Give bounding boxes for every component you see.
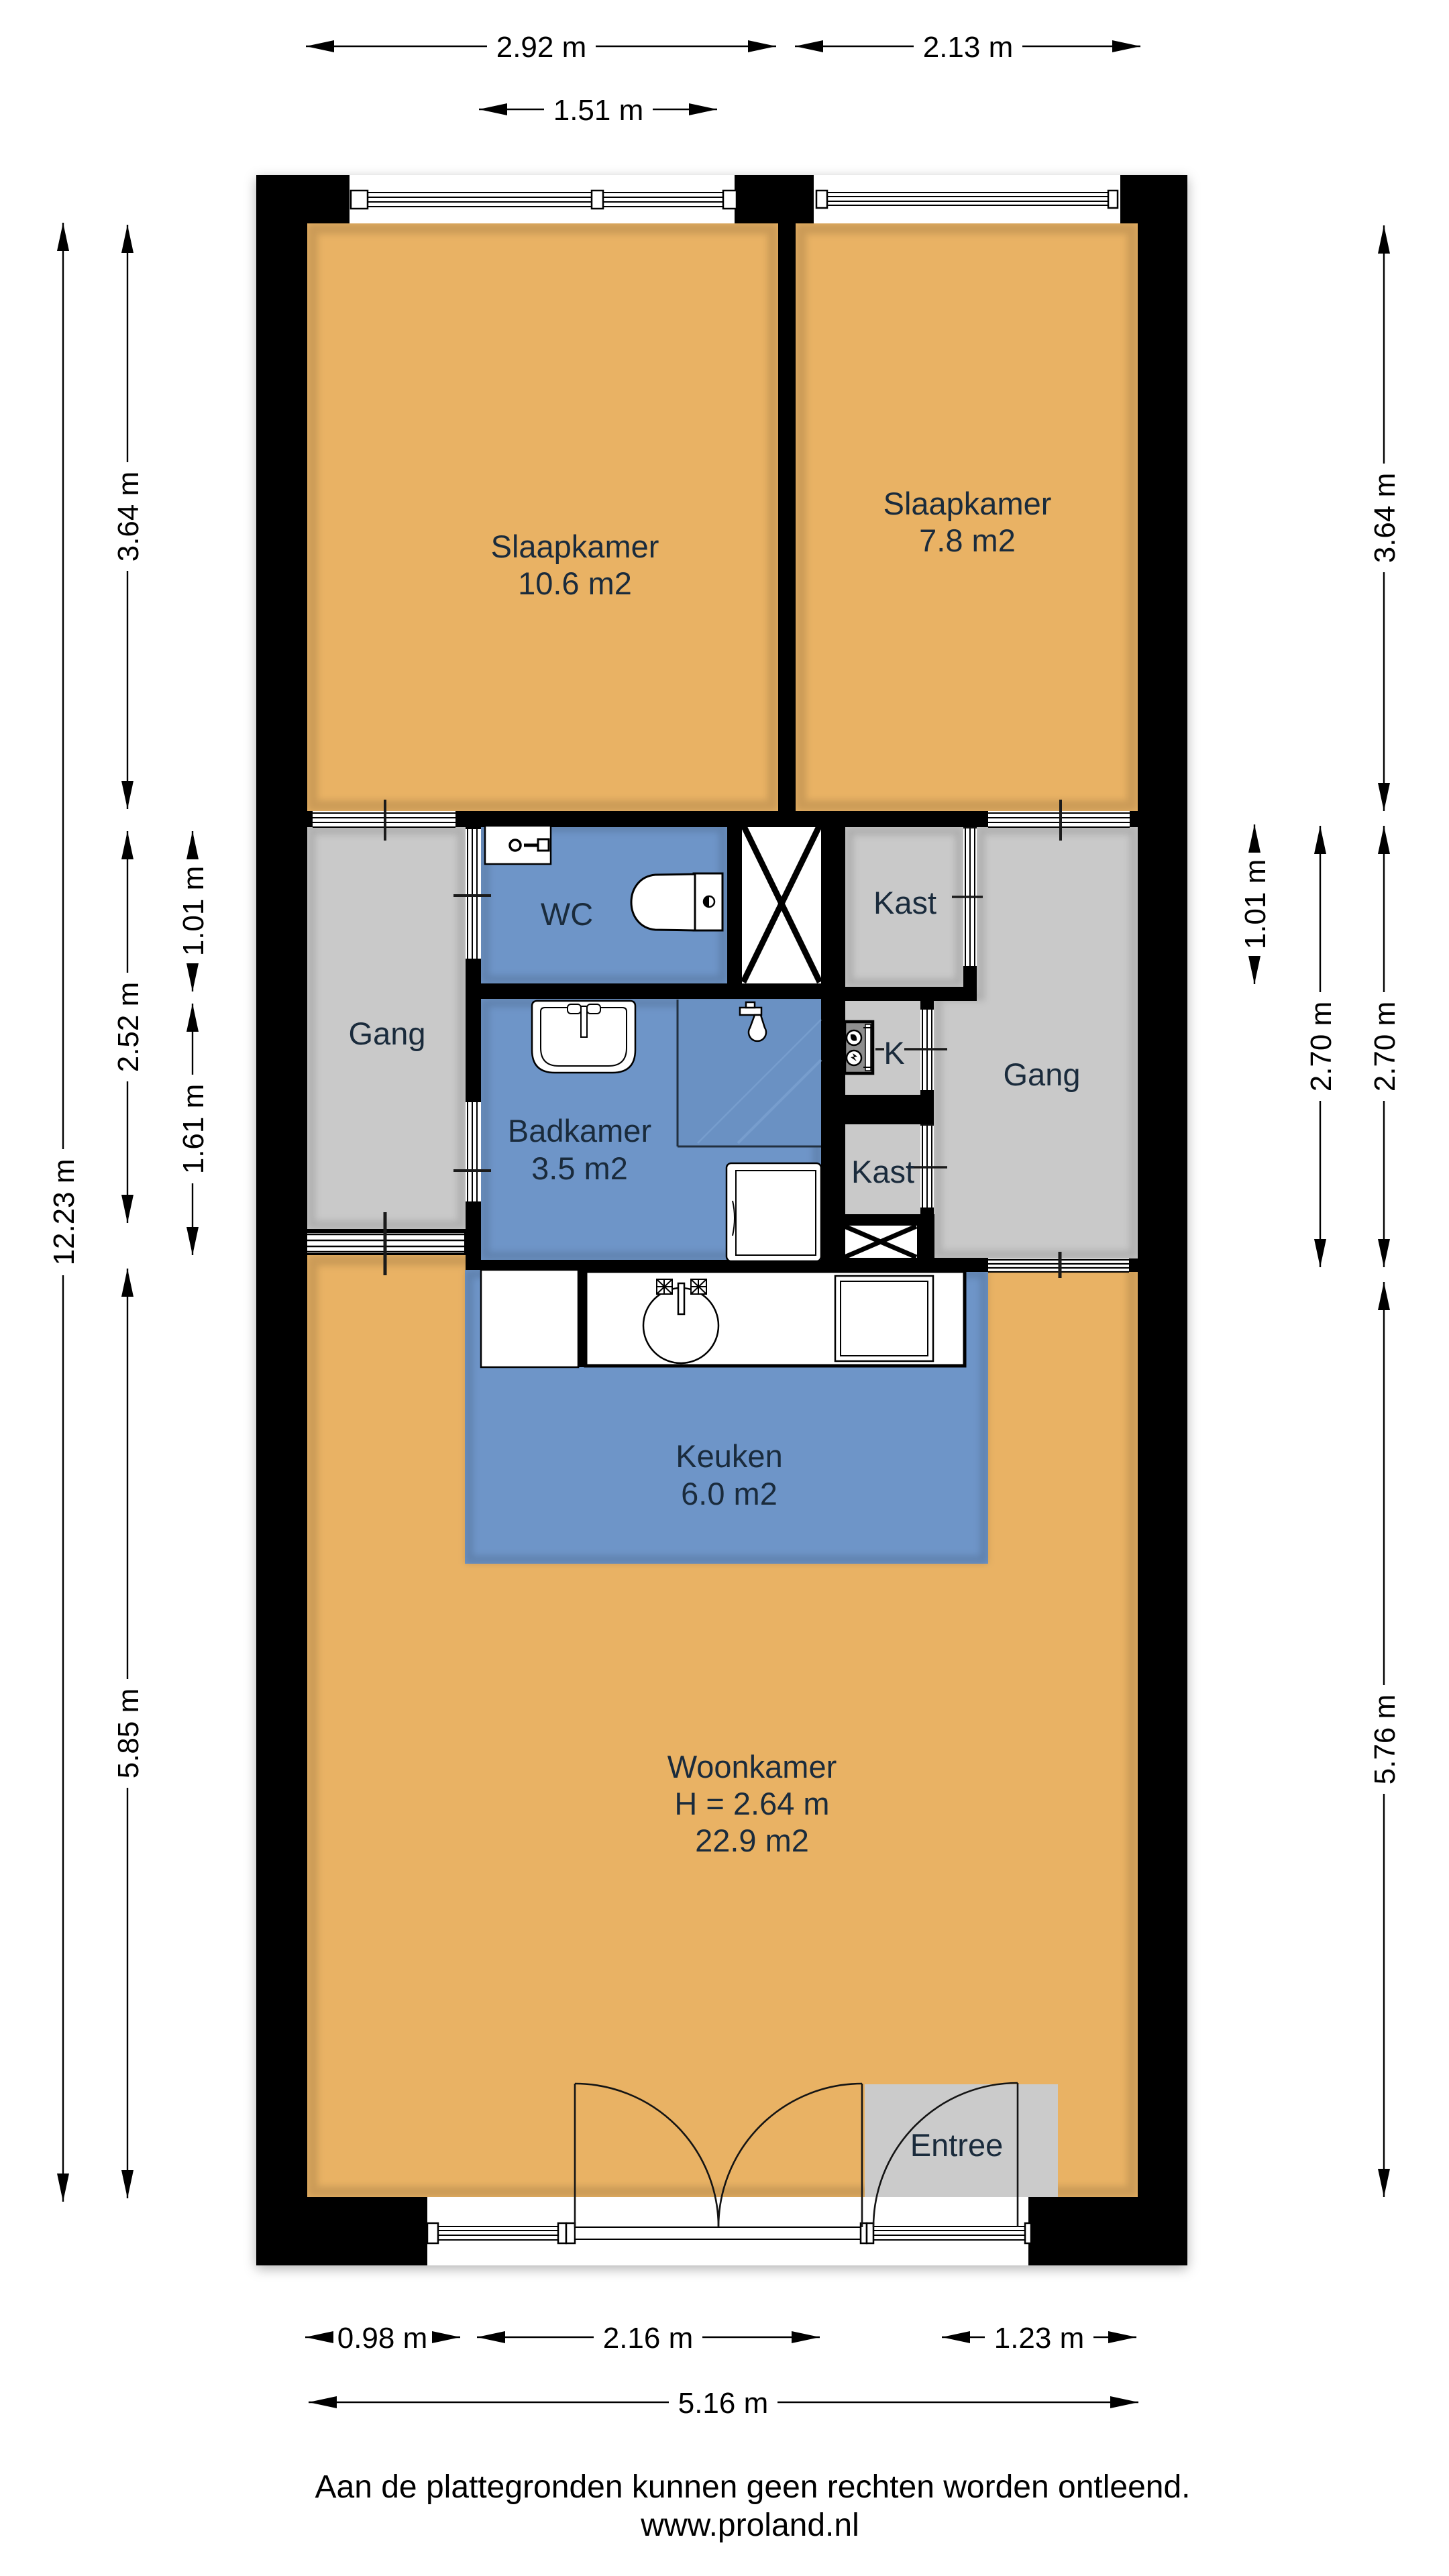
svg-text:5.85 m: 5.85 m <box>112 1688 145 1779</box>
svg-text:1.61 m: 1.61 m <box>177 1084 210 1175</box>
svg-text:Entree: Entree <box>910 2127 1003 2163</box>
svg-text:www.proland.nl: www.proland.nl <box>640 2508 859 2543</box>
svg-text:5.76 m: 5.76 m <box>1368 1695 1401 1785</box>
svg-text:H = 2.64 m: H = 2.64 m <box>674 1786 829 1821</box>
svg-text:2.70 m: 2.70 m <box>1368 1002 1401 1092</box>
svg-text:2.52 m: 2.52 m <box>112 982 145 1073</box>
svg-text:1.51 m: 1.51 m <box>553 94 644 127</box>
svg-text:Slaapkamer: Slaapkamer <box>883 486 1052 521</box>
svg-text:0.98 m: 0.98 m <box>337 2322 428 2355</box>
svg-text:1.23 m: 1.23 m <box>994 2322 1085 2355</box>
svg-text:3.64 m: 3.64 m <box>1368 473 1401 563</box>
svg-text:5.16 m: 5.16 m <box>678 2387 769 2420</box>
svg-text:Kast: Kast <box>873 885 936 920</box>
svg-text:Kast: Kast <box>851 1154 914 1189</box>
svg-text:Badkamer: Badkamer <box>508 1113 651 1148</box>
svg-text:Woonkamer: Woonkamer <box>667 1749 837 1784</box>
svg-text:1.01 m: 1.01 m <box>1239 859 1272 950</box>
svg-text:2.16 m: 2.16 m <box>603 2322 694 2355</box>
svg-text:12.23 m: 12.23 m <box>48 1159 80 1266</box>
svg-text:Gang: Gang <box>349 1016 426 1051</box>
svg-text:K: K <box>883 1035 904 1071</box>
svg-text:2.70 m: 2.70 m <box>1305 1002 1338 1092</box>
svg-text:Slaapkamer: Slaapkamer <box>491 529 659 564</box>
svg-text:7.8 m2: 7.8 m2 <box>919 523 1016 558</box>
svg-text:3.5 m2: 3.5 m2 <box>531 1150 628 1186</box>
svg-text:22.9 m2: 22.9 m2 <box>695 1823 809 1858</box>
svg-text:3.64 m: 3.64 m <box>112 472 145 562</box>
svg-text:WC: WC <box>541 896 593 932</box>
svg-text:6.0 m2: 6.0 m2 <box>681 1476 777 1511</box>
svg-text:Keuken: Keuken <box>676 1438 782 1474</box>
svg-text:Gang: Gang <box>1004 1057 1081 1092</box>
svg-text:2.13 m: 2.13 m <box>923 31 1014 64</box>
svg-text:2.92 m: 2.92 m <box>496 31 587 64</box>
svg-text:1.01 m: 1.01 m <box>177 866 210 957</box>
svg-text:Aan de plattegronden kunnen ge: Aan de plattegronden kunnen geen rechten… <box>315 2469 1190 2505</box>
svg-text:10.6 m2: 10.6 m2 <box>518 566 632 601</box>
